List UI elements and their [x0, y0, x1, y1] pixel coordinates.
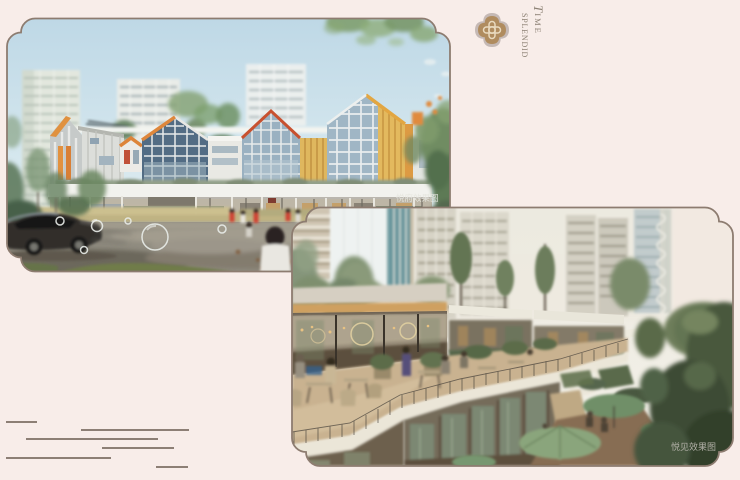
svg-text:悦见效果图: 悦见效果图: [671, 441, 716, 452]
